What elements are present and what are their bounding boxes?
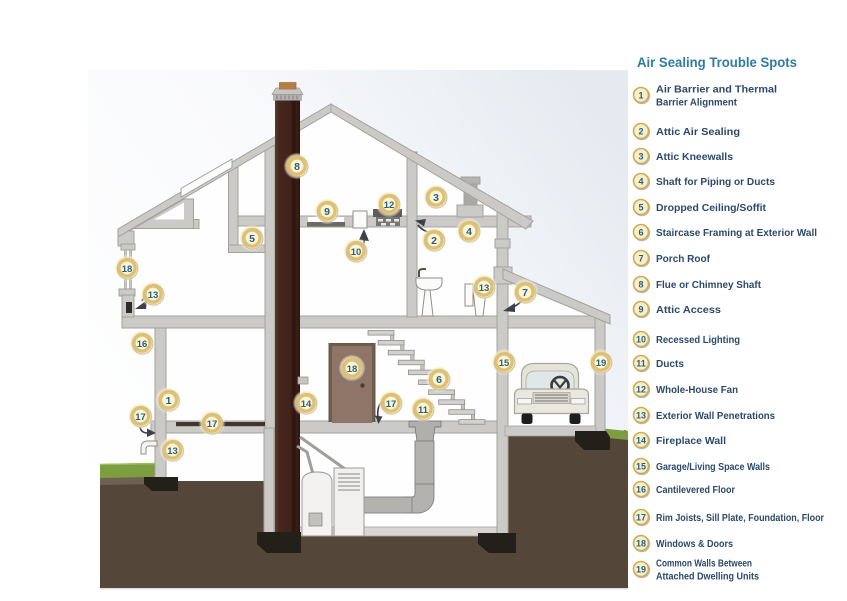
svg-text:4: 4 <box>638 177 643 187</box>
svg-text:11: 11 <box>636 359 646 369</box>
svg-text:Barrier Alignment: Barrier Alignment <box>656 97 737 109</box>
svg-text:Exterior Wall Penetrations: Exterior Wall Penetrations <box>656 410 775 422</box>
svg-text:13: 13 <box>148 290 159 301</box>
svg-text:5: 5 <box>638 203 643 213</box>
svg-text:7: 7 <box>638 254 643 264</box>
svg-text:13: 13 <box>479 283 490 294</box>
svg-text:16: 16 <box>137 339 148 350</box>
svg-text:17: 17 <box>135 412 146 423</box>
svg-text:1: 1 <box>166 395 172 407</box>
svg-text:16: 16 <box>636 485 646 495</box>
svg-text:Ducts: Ducts <box>656 358 684 370</box>
svg-text:13: 13 <box>167 446 178 457</box>
svg-text:18: 18 <box>347 364 358 375</box>
svg-text:14: 14 <box>301 399 312 410</box>
svg-text:17: 17 <box>207 419 218 430</box>
svg-text:Air Barrier and Thermal: Air Barrier and Thermal <box>656 84 777 96</box>
svg-text:13: 13 <box>636 411 646 421</box>
svg-text:Fireplace Wall: Fireplace Wall <box>656 435 726 447</box>
svg-text:Windows & Doors: Windows & Doors <box>656 538 733 550</box>
svg-text:6: 6 <box>436 374 442 386</box>
svg-text:2: 2 <box>431 235 437 247</box>
svg-text:17: 17 <box>386 399 397 410</box>
svg-text:Shaft for Piping or Ducts: Shaft for Piping or Ducts <box>656 176 775 188</box>
svg-text:12: 12 <box>384 200 395 211</box>
svg-text:4: 4 <box>466 226 472 238</box>
svg-text:3: 3 <box>433 192 439 204</box>
svg-text:Staircase Framing at Exterior: Staircase Framing at Exterior Wall <box>656 227 817 239</box>
svg-text:Porch Roof: Porch Roof <box>656 253 710 265</box>
svg-text:11: 11 <box>418 405 429 416</box>
svg-text:Attic Kneewalls: Attic Kneewalls <box>656 151 733 163</box>
svg-text:Recessed Lighting: Recessed Lighting <box>656 334 740 346</box>
svg-text:19: 19 <box>636 565 646 575</box>
svg-text:Attic Air Sealing: Attic Air Sealing <box>656 126 740 138</box>
svg-text:Rim Joists, Sill Plate, Founda: Rim Joists, Sill Plate, Foundation, Floo… <box>656 512 824 524</box>
svg-text:5: 5 <box>249 233 255 245</box>
svg-text:10: 10 <box>636 335 646 345</box>
svg-text:10: 10 <box>351 247 362 258</box>
svg-text:19: 19 <box>596 358 607 369</box>
svg-text:Air Sealing Trouble Spots: Air Sealing Trouble Spots <box>637 54 797 70</box>
svg-text:15: 15 <box>636 462 646 472</box>
svg-text:2: 2 <box>638 127 643 137</box>
svg-text:8: 8 <box>294 161 300 173</box>
svg-text:17: 17 <box>636 513 646 523</box>
svg-text:9: 9 <box>638 305 643 315</box>
svg-text:Whole-House Fan: Whole-House Fan <box>656 384 738 396</box>
svg-text:8: 8 <box>638 280 643 290</box>
svg-text:14: 14 <box>636 436 646 446</box>
svg-text:7: 7 <box>522 287 528 299</box>
svg-text:Dropped Ceiling/Soffit: Dropped Ceiling/Soffit <box>656 202 766 214</box>
svg-text:6: 6 <box>638 228 643 238</box>
svg-text:Attic Access: Attic Access <box>656 304 721 316</box>
svg-text:9: 9 <box>324 206 330 218</box>
svg-text:12: 12 <box>636 385 646 395</box>
svg-text:18: 18 <box>122 264 133 275</box>
svg-text:Common Walls Between: Common Walls Between <box>656 558 752 570</box>
svg-text:Cantilevered Floor: Cantilevered Floor <box>656 484 735 496</box>
svg-text:3: 3 <box>638 152 643 162</box>
svg-text:1: 1 <box>638 91 643 101</box>
svg-text:Garage/Living Space Walls: Garage/Living Space Walls <box>656 461 770 473</box>
svg-text:Flue or Chimney Shaft: Flue or Chimney Shaft <box>656 279 761 291</box>
svg-text:15: 15 <box>499 358 510 369</box>
svg-text:18: 18 <box>636 539 646 549</box>
svg-text:Attached Dwelling Units: Attached Dwelling Units <box>656 571 759 583</box>
